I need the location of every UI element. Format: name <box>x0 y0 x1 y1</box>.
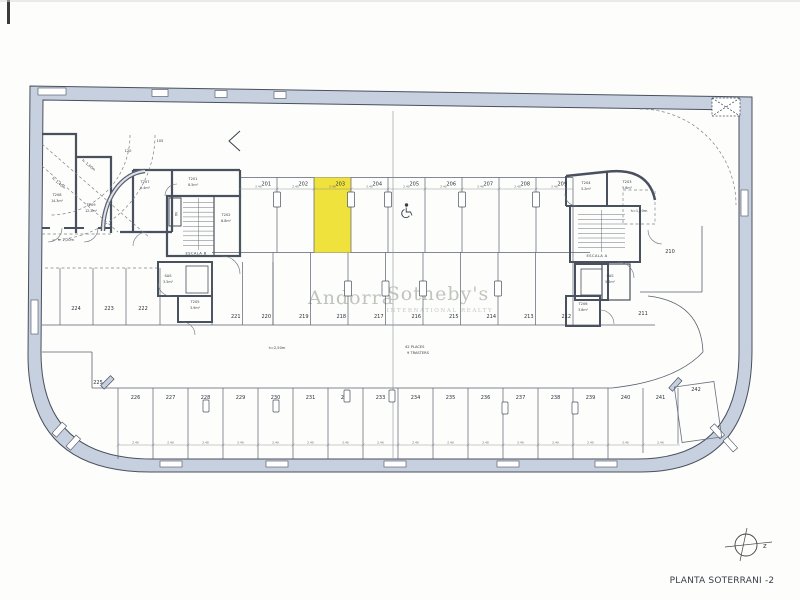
capacity-trasters: 9 TRASTERS <box>407 351 430 355</box>
column <box>495 281 502 296</box>
parking-space-number: 226 <box>131 395 141 401</box>
annotation-h-store: h: 2,20m <box>58 238 75 242</box>
parking-space-number: 236 <box>481 395 491 401</box>
parking-space-number: 202 <box>298 182 308 188</box>
room-area: 8.5m² <box>188 183 198 187</box>
parking-space-number: 223 <box>104 306 114 312</box>
column <box>572 402 578 414</box>
parking-space-number: 211 <box>638 311 648 317</box>
dimension-label: 2.40 <box>551 185 558 189</box>
dimension-label: 2.40 <box>237 441 244 445</box>
floorplan-drawing: Andorra Sotheby's INTERNATIONAL REALTY 4… <box>0 0 800 600</box>
watermark-brand-right: Sotheby's <box>387 283 489 305</box>
elevator-label: VA <box>174 212 178 217</box>
parking-space-number: 204 <box>372 182 382 188</box>
parking-space-number: 216 <box>411 314 421 320</box>
parking-space-number: 225 <box>93 380 103 386</box>
room-id: T208 <box>51 193 62 197</box>
parking-space-number: 227 <box>166 395 176 401</box>
parking-space-number: 233 <box>376 395 386 401</box>
column <box>533 192 540 207</box>
dimension-label: 2.40 <box>132 441 139 445</box>
dimension-label: 2.40 <box>440 185 447 189</box>
annotation-h-aisle: h=2,50m <box>269 346 286 350</box>
floorplan-page: Andorra Sotheby's INTERNATIONAL REALTY 4… <box>0 0 800 600</box>
dimension-label: 2.40 <box>447 441 454 445</box>
room-id: T205 <box>189 300 199 304</box>
shaft-box <box>712 98 740 116</box>
dimension-label: 2.40 <box>272 441 279 445</box>
dimension-label: 2.40 <box>517 441 524 445</box>
stair-b-label: ESCALA B <box>185 251 206 256</box>
dimension-label: 2.40 <box>657 441 664 445</box>
room-area: 3.8m² <box>578 308 588 312</box>
room-area: 5.2m² <box>581 187 591 191</box>
room-id: T202 <box>220 213 230 217</box>
room-area: 9.4m² <box>140 186 150 190</box>
parking-space-number: 208 <box>520 182 530 188</box>
room-id: T201 <box>187 177 197 181</box>
annotation-radius-105: 105 <box>157 139 164 143</box>
room-area: 14.3m² <box>51 199 64 203</box>
room-area: 6.8m² <box>221 219 231 223</box>
dimension-label: 2.40 <box>307 441 314 445</box>
parking-space-number: 218 <box>336 314 346 320</box>
parking-space-number: 212 <box>561 314 571 320</box>
column <box>420 281 427 296</box>
parking-space-number: 215 <box>449 314 459 320</box>
parking-space-number: 239 <box>586 395 596 401</box>
room-id: T204 <box>580 181 591 185</box>
parking-space-number: 235 <box>446 395 456 401</box>
dimension-label: 2.40 <box>403 185 410 189</box>
parking-space-number: 209 <box>557 182 567 188</box>
dimension-label: 2.40 <box>514 185 521 189</box>
column <box>348 192 355 207</box>
parking-space-number: 231 <box>306 395 316 401</box>
parking-space-number: 221 <box>231 314 241 320</box>
parking-space-number: 213 <box>524 314 534 320</box>
dimension-label: 2.40 <box>366 185 373 189</box>
parking-space-number: 219 <box>299 314 309 320</box>
parking-space-number: 207 <box>483 182 493 188</box>
watermark: Andorra Sotheby's INTERNATIONAL REALTY <box>307 283 493 314</box>
room-id: T206 <box>577 302 588 306</box>
dimension-label: 2.40 <box>587 441 594 445</box>
outer-wall <box>28 86 752 472</box>
column <box>273 400 279 412</box>
column <box>382 281 389 296</box>
drawing-title: PLANTA SOTERRANI -2 <box>670 576 775 586</box>
scan-artifact <box>7 0 10 24</box>
corner-tick-right <box>669 377 682 391</box>
room-id: SAS <box>164 274 172 278</box>
column <box>274 192 281 207</box>
parking-space-number: 210 <box>665 249 675 255</box>
ramp-chevron <box>229 131 240 151</box>
room-area: 5.8m² <box>622 186 632 190</box>
room-id: T207 <box>139 180 149 184</box>
capacity-places: 42 PLACES <box>405 345 425 349</box>
annotation-h-diag-high: h: 1,60m <box>81 159 96 173</box>
room-id: SAS <box>606 274 614 278</box>
parking-space-number: 229 <box>236 395 246 401</box>
annotation-h-right: h=1,50m <box>631 209 648 213</box>
parking-space-number: 241 <box>656 395 666 401</box>
parking-space-number: 222 <box>138 306 148 312</box>
dimension-label: 2.40 <box>622 441 629 445</box>
dimension-label: 2.40 <box>412 441 419 445</box>
column <box>345 281 352 296</box>
dimension-label: 2.40 <box>552 441 559 445</box>
column <box>385 192 392 207</box>
wall-insets <box>31 88 748 467</box>
parking-space-number: 205 <box>409 182 419 188</box>
parking-space-number: 220 <box>261 314 271 320</box>
compass-axis-label: z <box>763 542 767 550</box>
parking-space-number: 240 <box>621 395 631 401</box>
wheelchair-icon <box>402 203 412 217</box>
dimension-label: 2.40 <box>377 441 384 445</box>
stair-a-label: ESCALA A <box>586 253 607 258</box>
parking-space-number: 234 <box>411 395 421 401</box>
column <box>344 390 350 402</box>
dimension-label: 2.40 <box>292 185 299 189</box>
dimension-label: 2.40 <box>202 441 209 445</box>
parking-space-number: 237 <box>516 395 526 401</box>
annotation-radius-120: 120 <box>125 149 133 153</box>
room-area: 3.9m² <box>190 306 200 310</box>
dimension-label: 2.40 <box>477 185 484 189</box>
dimension-label: 2.40 <box>167 441 174 445</box>
dimension-label: 2.40 <box>342 441 349 445</box>
column <box>389 390 395 402</box>
annotation-h-diag-low: h: 1,40m <box>51 177 66 191</box>
parking-space-number: 203 <box>335 182 345 188</box>
dimension-label: 2.40 <box>482 441 489 445</box>
highlighted-space <box>314 178 351 253</box>
parking-space-number: 206 <box>446 182 456 188</box>
parking-space-number: 201 <box>261 182 271 188</box>
room-id: T209 <box>85 203 96 207</box>
column <box>203 400 209 412</box>
column <box>502 402 508 414</box>
dimension-label: 2.40 <box>255 185 262 189</box>
room-area: 3.5m² <box>163 280 173 284</box>
parking-space-number: 224 <box>71 306 81 312</box>
column <box>459 192 466 207</box>
parking-space-number: 217 <box>374 314 384 320</box>
room-area: 12.2m² <box>85 209 98 213</box>
room-id: T203 <box>621 180 631 184</box>
aisle-lines <box>42 178 703 389</box>
parking-space-number: 242 <box>691 387 701 393</box>
watermark-subtitle: INTERNATIONAL REALTY <box>387 308 493 314</box>
room-area: 5.2m² <box>605 280 615 284</box>
parking-space-number: 238 <box>551 395 561 401</box>
parking-space-number: 214 <box>486 314 496 320</box>
dimension-label: 2.40 <box>329 185 336 189</box>
